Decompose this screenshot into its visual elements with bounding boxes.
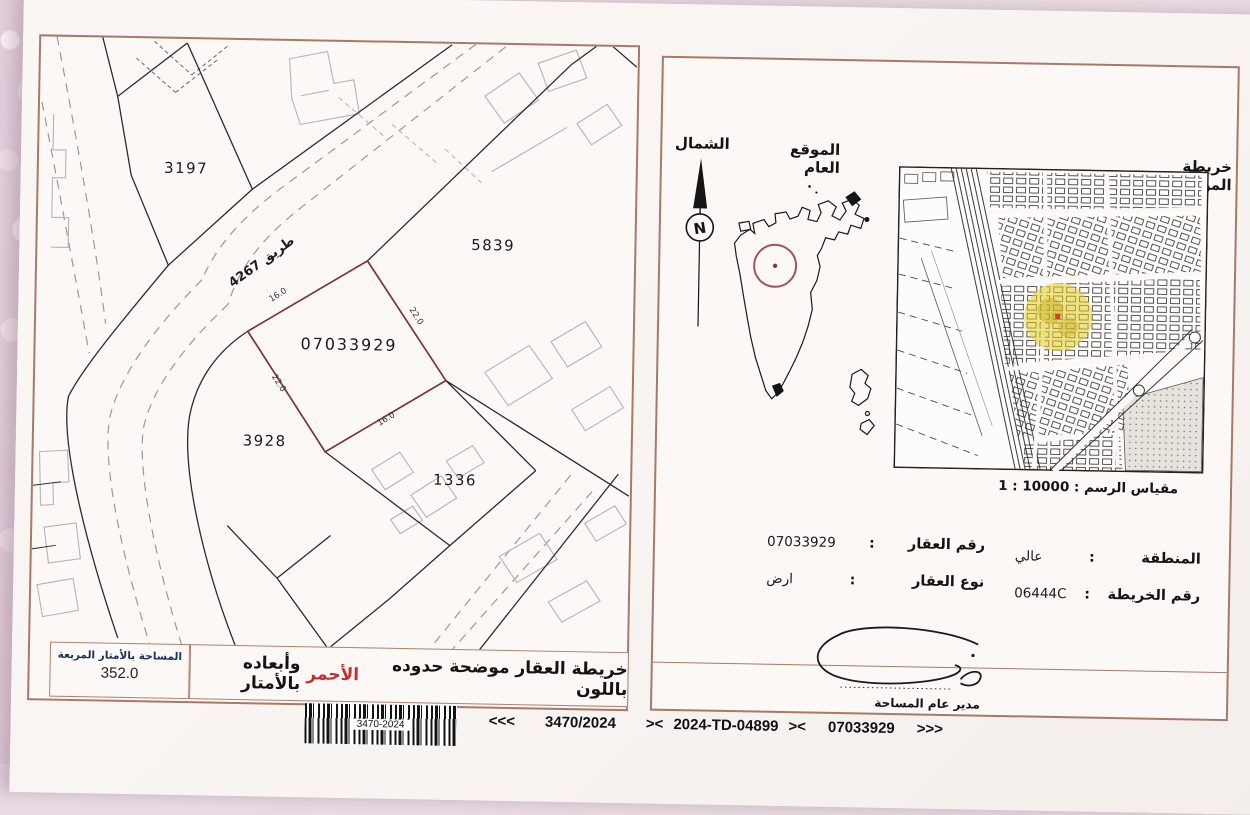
map-number-row: رقم الخريطة : 06444C xyxy=(1014,585,1200,604)
plot-label-5839: 5839 xyxy=(471,236,515,255)
roundabout xyxy=(1189,332,1200,343)
location-map xyxy=(893,166,1208,474)
property-number-label: رقم العقار xyxy=(908,536,985,553)
footer-ref-3: 07033929 xyxy=(828,719,895,737)
road-label: طريق 4267 xyxy=(226,233,297,290)
bahrain-coastline xyxy=(731,197,878,435)
caption-suffix: وأبعاده بالأمتار xyxy=(190,652,301,694)
map-number-label: رقم الخريطة xyxy=(1107,587,1200,605)
district-label: المنطقة xyxy=(1141,551,1201,568)
map-caption-box: خريطة العقار موضحة حدوده باللون الأحمر و… xyxy=(189,644,629,707)
district-row: المنطقة : عالي xyxy=(1015,548,1201,567)
signatory-title: مدير عام المساحة xyxy=(857,695,997,712)
footer-separator: >< xyxy=(788,718,806,735)
dimension-top-right: 22.0 xyxy=(407,305,426,326)
map-scale-text: 1 : 10000 : مقياس الرسم xyxy=(968,477,1208,497)
property-number-value: 07033929 xyxy=(767,534,836,551)
paper-document: 3197 5839 07033929 3928 1336 طريق 4267 1… xyxy=(9,0,1250,815)
property-type-label: نوع العقار xyxy=(912,573,985,590)
map-number-value: 06444C xyxy=(1014,585,1067,602)
property-type-row: نوع العقار : ارض xyxy=(766,571,984,591)
north-letter: N xyxy=(692,219,707,239)
district-fields: المنطقة : عالي رقم الخريطة : 06444C xyxy=(1014,548,1201,625)
roundabout xyxy=(1133,385,1144,396)
north-arrow-stem xyxy=(698,241,700,326)
subject-plot-boundary xyxy=(246,259,448,454)
cadastral-map-drawing: 3197 5839 07033929 3928 1336 طريق 4267 1… xyxy=(30,36,638,652)
cadastral-map: 3197 5839 07033929 3928 1336 طريق 4267 1… xyxy=(30,36,638,652)
footer-right-arrows: >>> xyxy=(917,720,944,737)
bahrain-overview-map xyxy=(714,159,905,467)
north-arrow-head xyxy=(693,158,708,208)
subject-plot-label: 07033929 xyxy=(300,334,397,355)
footer-left-arrows: <<< xyxy=(489,713,516,730)
info-panel: الشمال N الموقع العام xyxy=(650,56,1240,721)
property-number-row: رقم العقار : 07033929 xyxy=(767,534,985,554)
caption-red-word: الأحمر xyxy=(306,664,359,685)
plot-label-3197: 3197 xyxy=(164,159,208,178)
barcode-label: 3470-2024 xyxy=(352,719,410,731)
footer-references: <<< 3470/2024 >< 2024-TD-04899 >< 070339… xyxy=(489,713,969,739)
site-marker xyxy=(1055,314,1060,319)
district-value: عالي xyxy=(1015,548,1043,565)
area-label: المساحة بالأمتار المربعة xyxy=(51,649,189,664)
plot-label-3928: 3928 xyxy=(243,431,287,450)
site-location-dot xyxy=(773,264,777,268)
north-title: الشمال xyxy=(670,134,734,153)
area-value: 352.0 xyxy=(50,664,188,684)
map-footer-strip: المساحة بالأمتار المربعة 352.0 خريطة الع… xyxy=(29,641,627,709)
property-fields: رقم العقار : 07033929 نوع العقار : ارض xyxy=(766,534,985,612)
property-type-value: ارض xyxy=(766,571,793,587)
dimension-top-left: 16.0 xyxy=(267,285,288,303)
plot-map-panel: 3197 5839 07033929 3928 1336 طريق 4267 1… xyxy=(27,34,640,711)
caption-prefix: خريطة العقار موضحة حدوده باللون xyxy=(365,655,628,700)
footer-ref-2: 2024-TD-04899 xyxy=(673,716,778,735)
plot-label-1336: 1336 xyxy=(433,471,477,490)
bahrain-urban-blobs xyxy=(772,185,870,399)
footer-ref-1: 3470/2024 xyxy=(545,714,616,732)
barcode: 3470-2024 xyxy=(304,703,457,746)
area-box: المساحة بالأمتار المربعة 352.0 xyxy=(49,642,190,700)
footer-separator: >< xyxy=(646,716,664,733)
